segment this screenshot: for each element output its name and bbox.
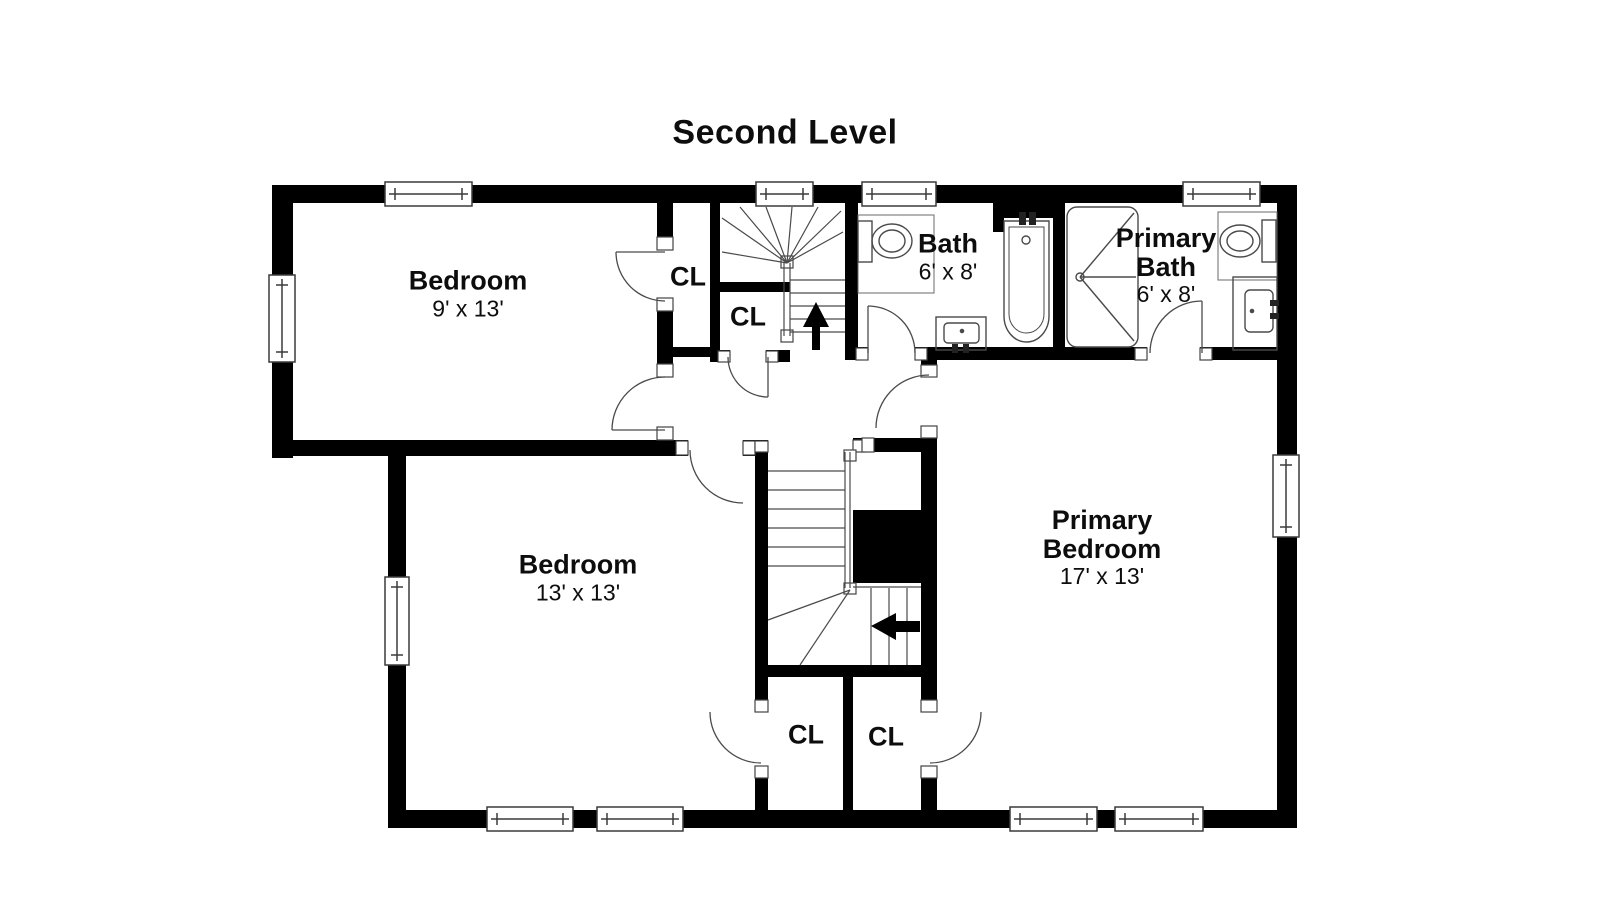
stair-solid-block: [853, 510, 921, 583]
door-arc: [690, 450, 743, 503]
window-symbol: [756, 182, 813, 206]
room-label-bath: Bath 6' x 8': [918, 229, 978, 284]
window-symbol: [385, 577, 409, 665]
room-label-primary-bedroom: Primary Bedroom 17' x 13': [1043, 506, 1162, 590]
closet-label-lower-right: CL: [868, 722, 904, 753]
stairs-up-arrow-icon: [803, 302, 829, 350]
door-arc: [868, 306, 915, 353]
door-arc: [612, 377, 665, 430]
window-symbol: [862, 182, 936, 206]
window-symbol: [269, 275, 295, 362]
window-symbol: [1273, 455, 1299, 537]
door-arc: [710, 712, 761, 763]
window-symbol: [597, 807, 683, 831]
window-symbol: [487, 807, 573, 831]
room-label-primary-bath: Primary Bath 6' x 8': [1116, 224, 1217, 308]
closet-label-lower-left: CL: [788, 720, 824, 751]
sink-icon: [1233, 277, 1279, 350]
door-arc: [876, 375, 929, 428]
door-arc: [930, 712, 981, 763]
door-arc: [616, 252, 665, 301]
room-label-bedroom-bottom-left: Bedroom 13' x 13': [519, 550, 638, 605]
window-symbol: [1010, 807, 1097, 831]
toilet-icon: [1218, 212, 1277, 280]
bathtub-icon: [1004, 212, 1049, 342]
door-arc: [728, 357, 768, 397]
closet-label-upper-middle: CL: [730, 302, 766, 333]
window-symbol: [1115, 807, 1203, 831]
closet-label-upper-left: CL: [670, 262, 706, 293]
door-arc: [1150, 301, 1202, 353]
window-symbol: [1183, 182, 1260, 206]
window-symbol: [385, 182, 472, 206]
room-label-bedroom-top-left: Bedroom 9' x 13': [409, 266, 528, 321]
stairs-left-arrow-icon: [871, 613, 920, 640]
floor-plan-page: Second Level Bedroom 9' x 13' Bedroom 13…: [0, 0, 1600, 914]
page-title: Second Level: [672, 114, 897, 153]
